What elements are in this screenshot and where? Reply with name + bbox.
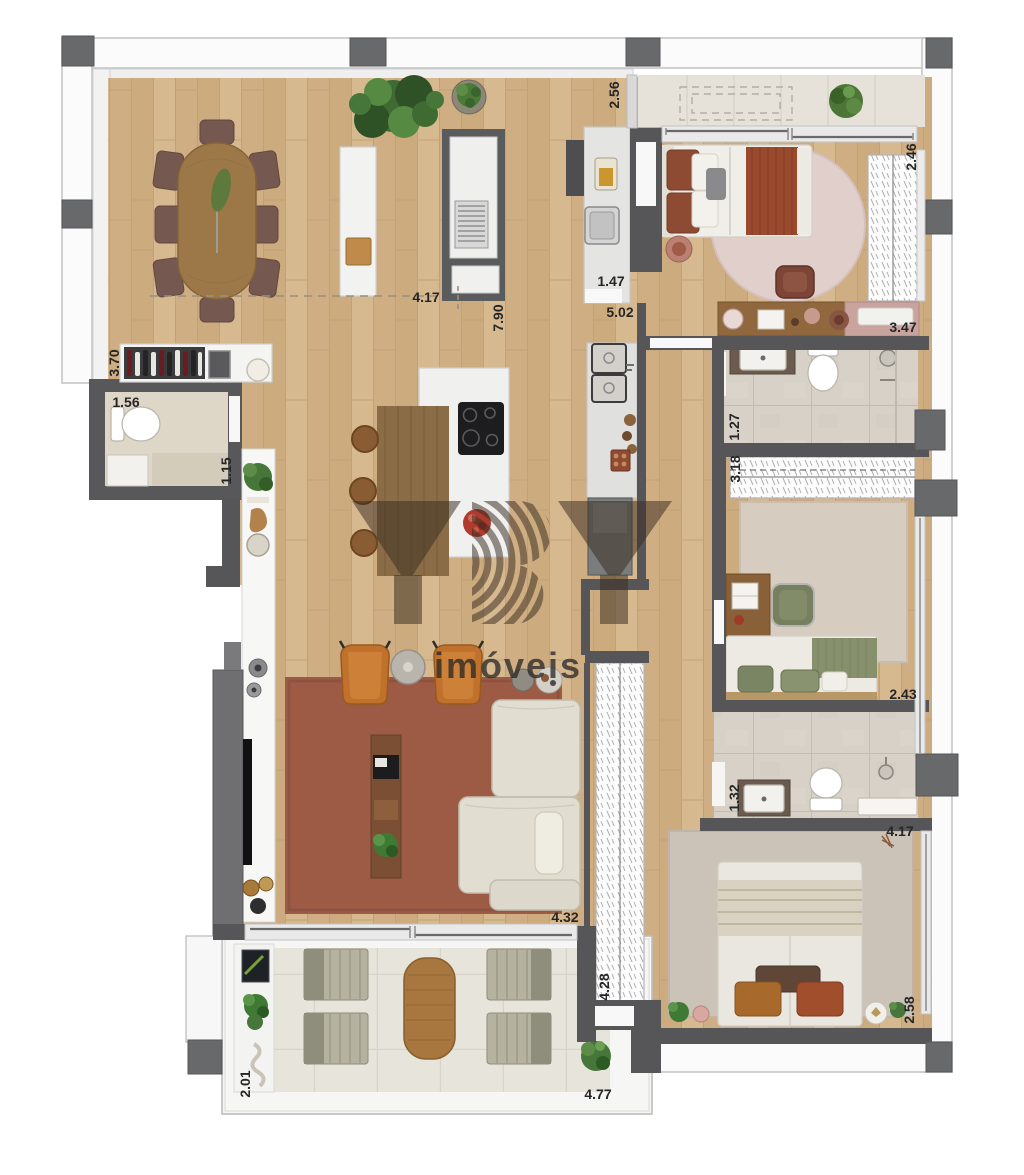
svg-text:4.17: 4.17 bbox=[886, 823, 913, 839]
svg-text:2.46: 2.46 bbox=[903, 143, 919, 170]
svg-text:1.15: 1.15 bbox=[218, 457, 234, 484]
svg-text:4.77: 4.77 bbox=[584, 1086, 611, 1102]
svg-text:4.32: 4.32 bbox=[551, 909, 578, 925]
svg-text:1.27: 1.27 bbox=[726, 413, 742, 440]
svg-text:1.47: 1.47 bbox=[597, 273, 624, 289]
svg-text:1.56: 1.56 bbox=[112, 394, 139, 410]
svg-text:2.58: 2.58 bbox=[901, 996, 917, 1023]
svg-text:7.90: 7.90 bbox=[490, 304, 506, 331]
svg-text:3.47: 3.47 bbox=[889, 319, 916, 335]
svg-text:2.01: 2.01 bbox=[237, 1070, 253, 1097]
svg-text:3.70: 3.70 bbox=[106, 349, 122, 376]
svg-text:4.28: 4.28 bbox=[596, 973, 612, 1000]
svg-text:2.56: 2.56 bbox=[606, 81, 622, 108]
svg-text:5.02: 5.02 bbox=[606, 304, 633, 320]
svg-text:imóveis: imóveis bbox=[434, 645, 582, 686]
svg-text:4.17: 4.17 bbox=[412, 289, 439, 305]
svg-text:3.18: 3.18 bbox=[727, 455, 743, 482]
svg-text:1.32: 1.32 bbox=[726, 784, 742, 811]
svg-text:2.43: 2.43 bbox=[889, 686, 916, 702]
